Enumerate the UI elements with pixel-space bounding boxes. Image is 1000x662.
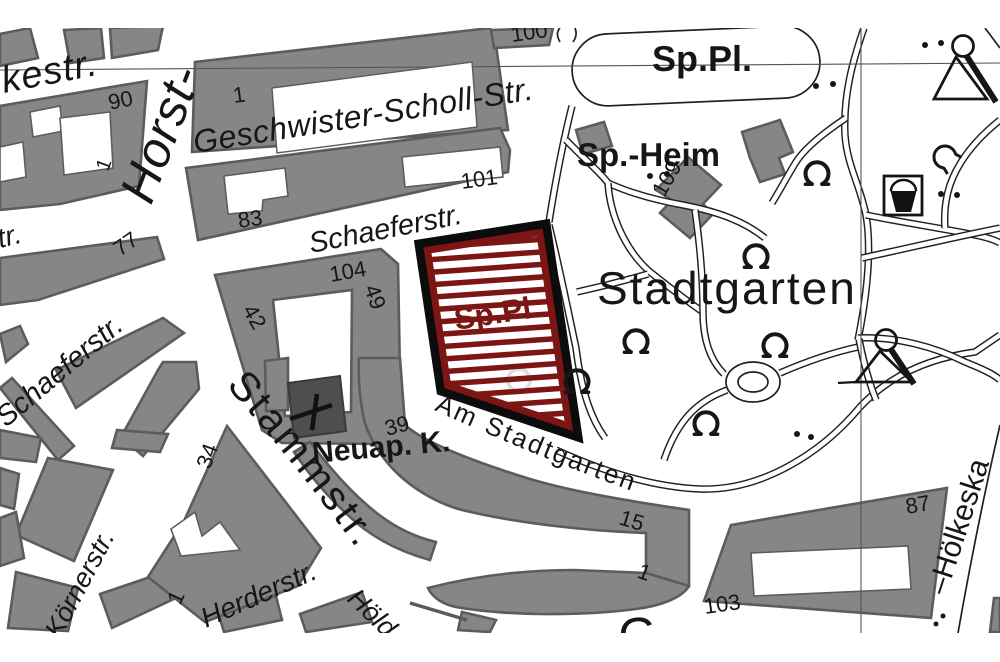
svg-text:101: 101: [459, 164, 499, 194]
svg-text:Sp.-Heim: Sp.-Heim: [577, 136, 720, 173]
svg-text:Sp.Pl.: Sp.Pl.: [652, 38, 752, 79]
svg-text:83: 83: [236, 205, 264, 233]
svg-text:87: 87: [904, 490, 932, 519]
svg-text:Stadtgarten: Stadtgarten: [597, 262, 857, 314]
svg-text:103: 103: [702, 589, 742, 619]
svg-text:90: 90: [106, 85, 135, 115]
